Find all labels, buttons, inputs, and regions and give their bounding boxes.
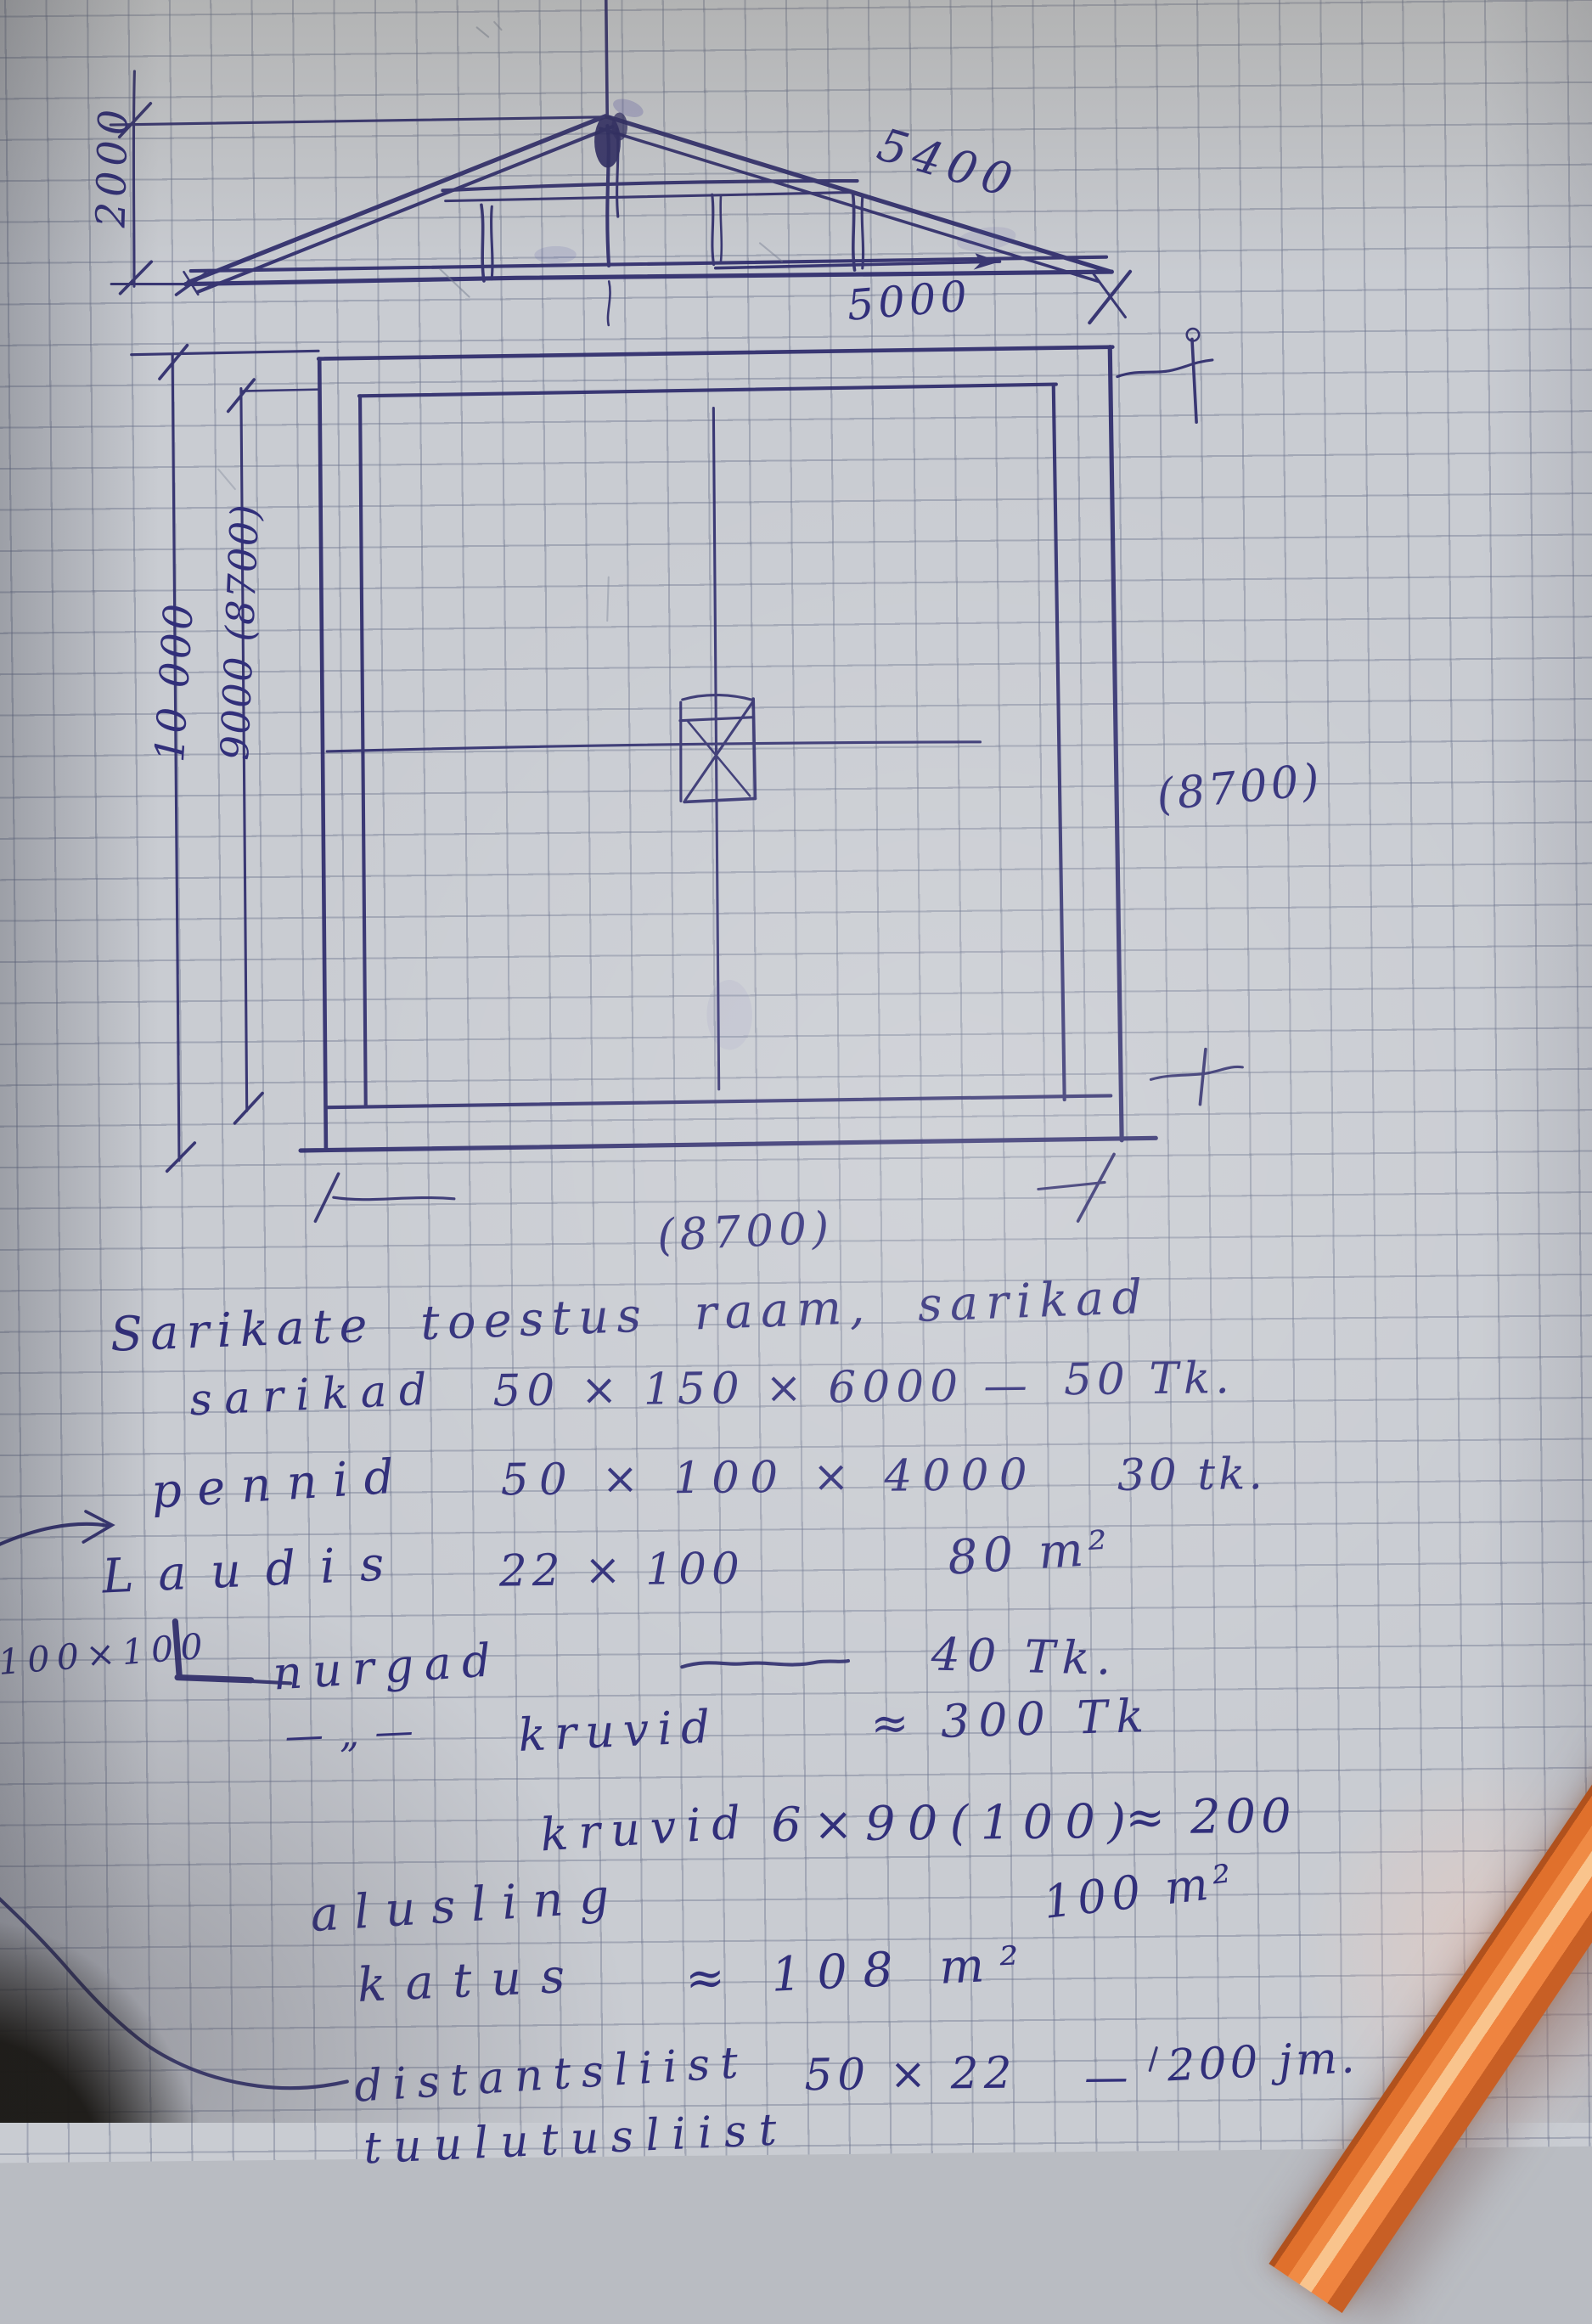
pencil-scratches [214,19,786,625]
roof-truss-drawing [173,0,1131,332]
graph-paper-sheet: 2000 5400 5000 10 000 9000 (8700) (8700)… [0,0,1592,2164]
ink-drawing [0,0,1592,2164]
photographed-sketch-page: { "dims": { "rise": "2000", "rafter": "5… [0,0,1592,2123]
notes-marks [0,1500,1157,2091]
angle-bracket-mark [175,1620,290,1685]
arrow-mark [0,1511,112,1552]
floor-plan-drawing [292,346,1156,1151]
squiggle-lead-line [0,1882,347,2091]
